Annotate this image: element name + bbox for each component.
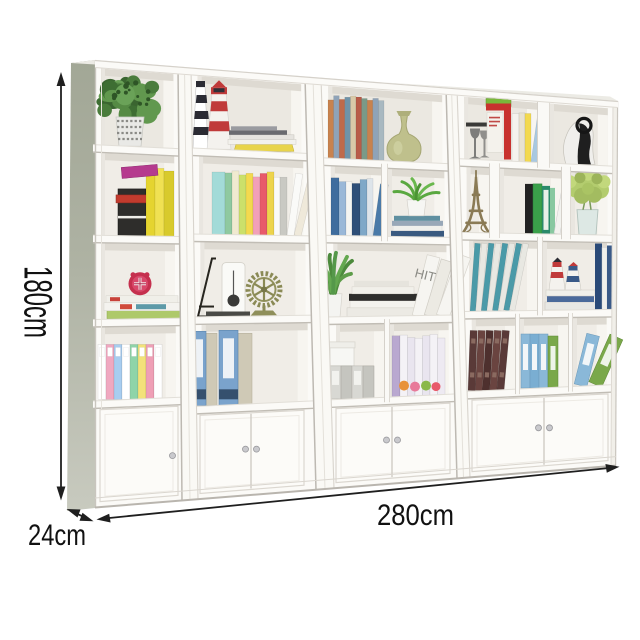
svg-text:24cm: 24cm [28,519,86,552]
svg-text:280cm: 280cm [377,499,454,532]
svg-text:180cm: 180cm [16,266,60,338]
